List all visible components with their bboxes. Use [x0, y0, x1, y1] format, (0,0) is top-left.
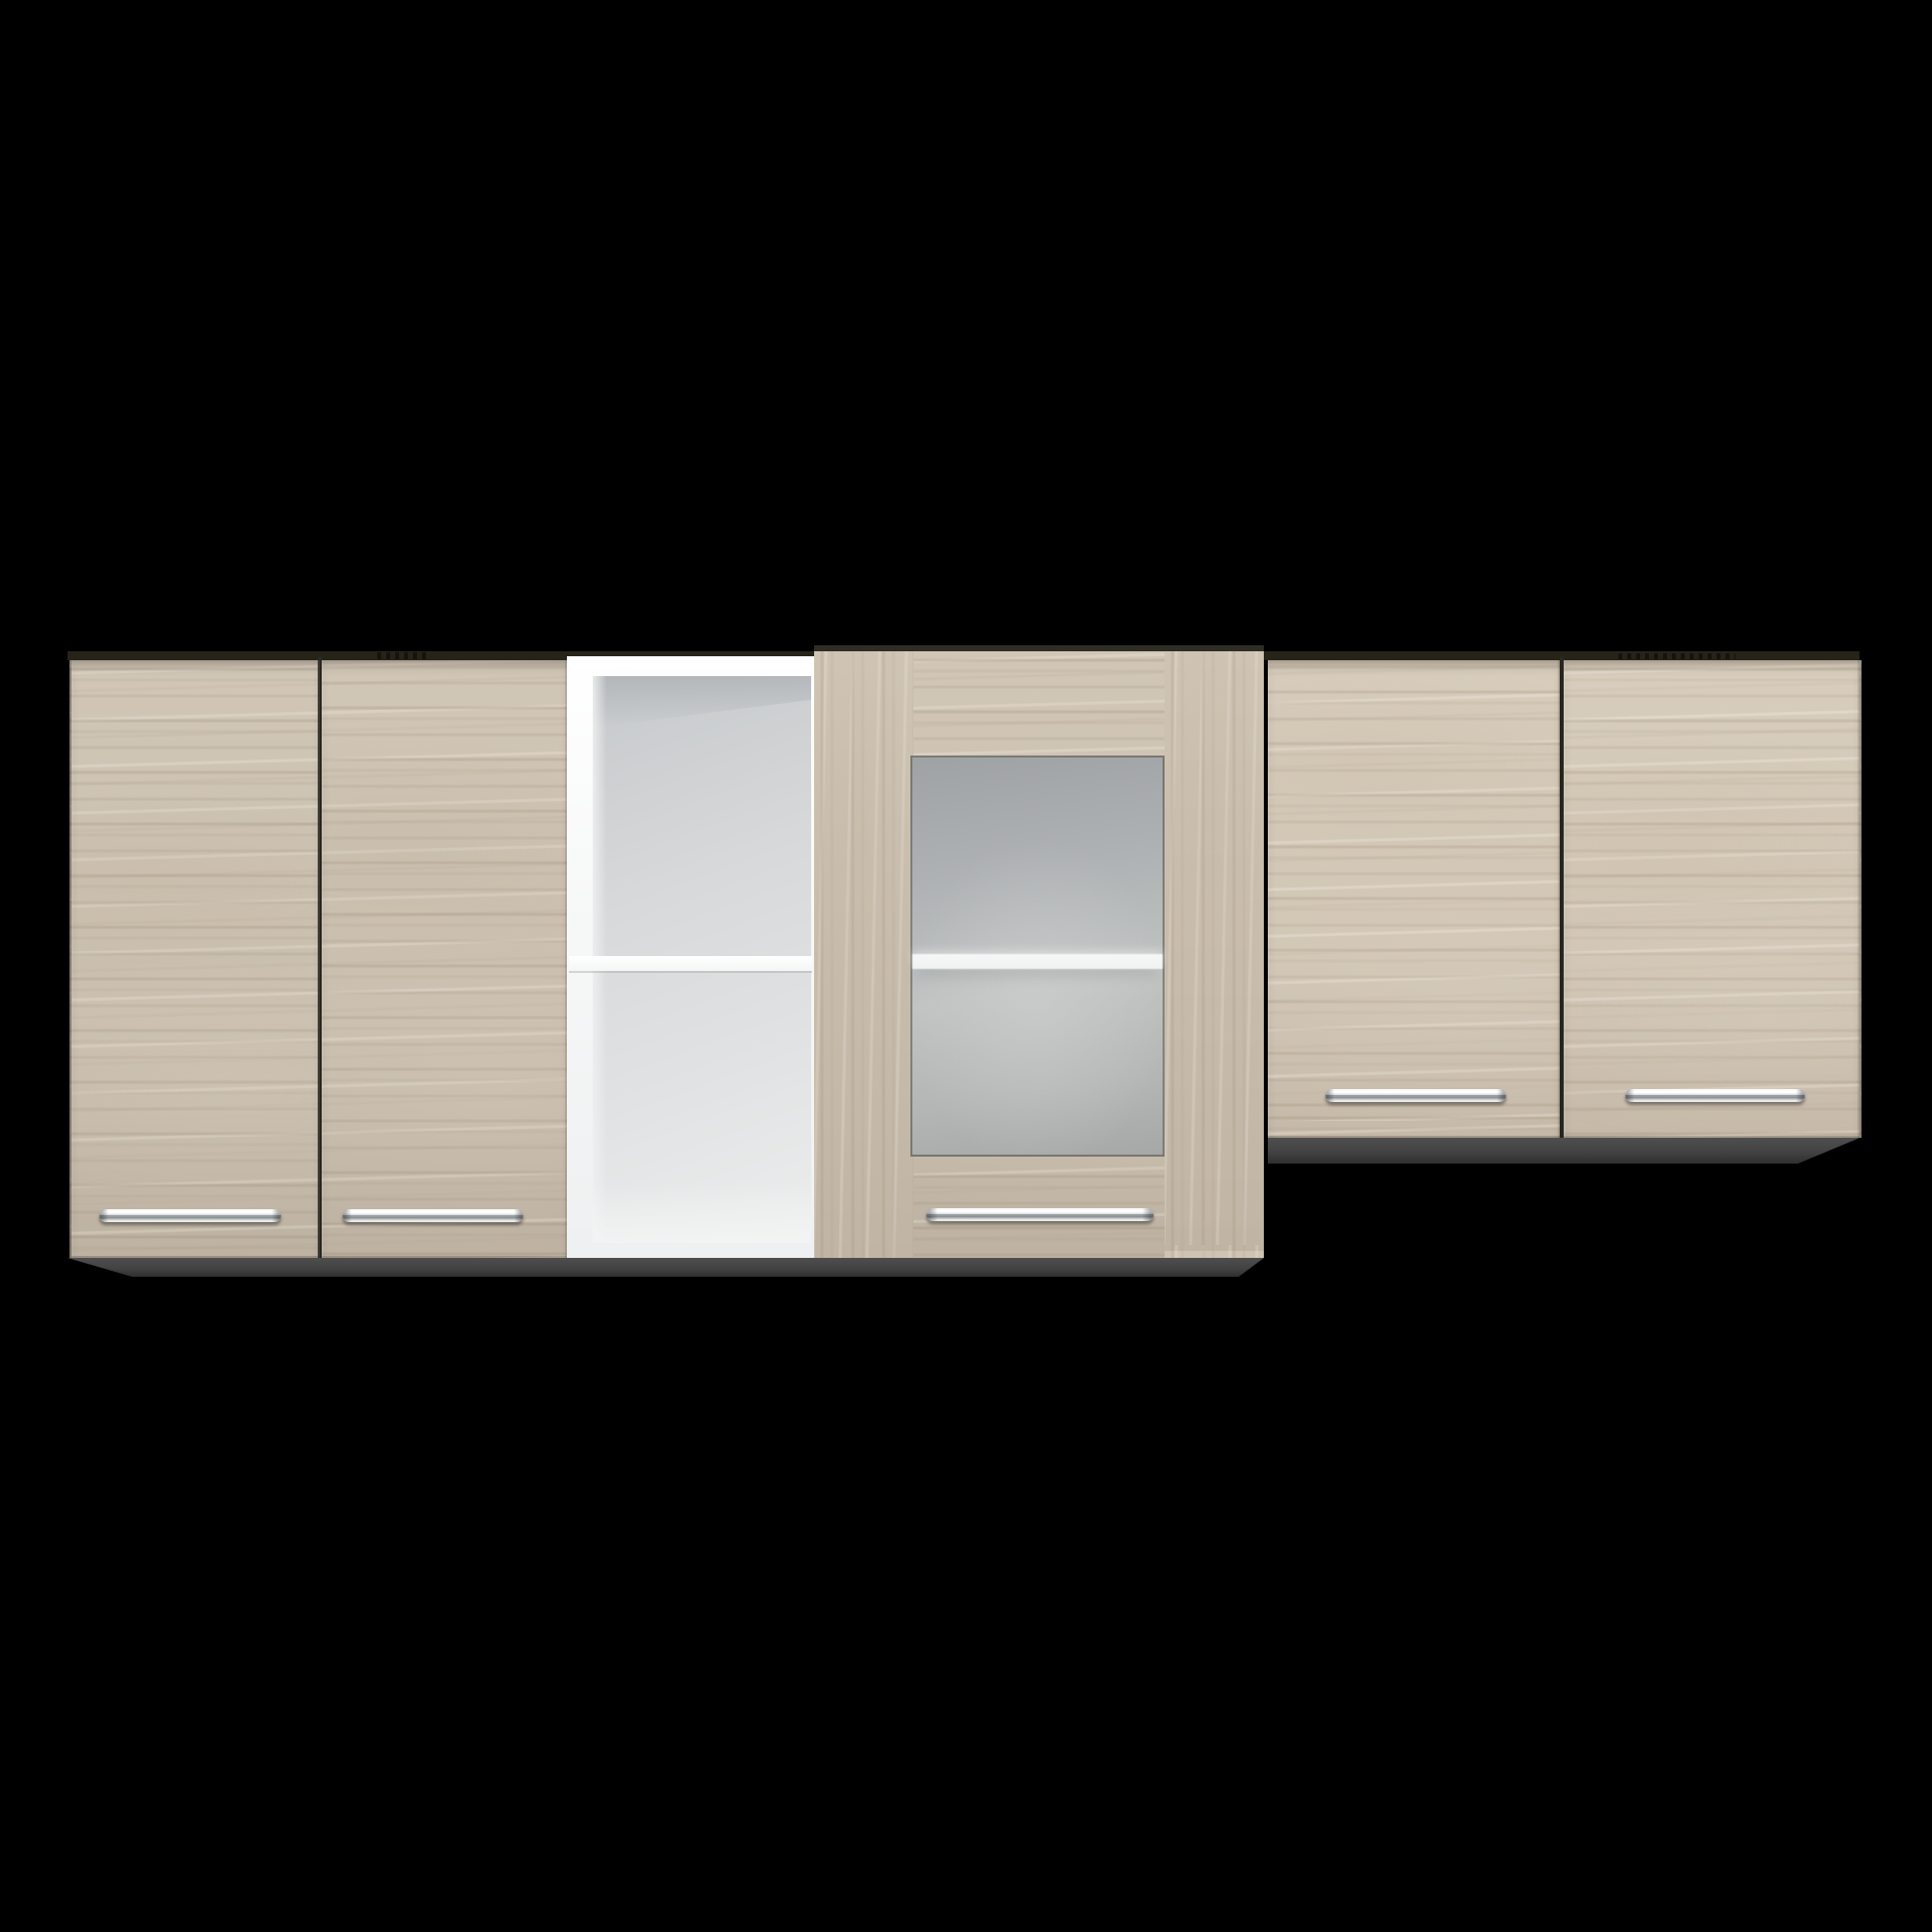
middle-shelf: [569, 956, 812, 971]
cabinet-underside-left: [68, 1258, 1264, 1277]
hinge-marks-right: [1618, 653, 1735, 659]
door-right-2-handle: [1625, 1089, 1805, 1102]
glass-door-cabinet: [814, 651, 1264, 1258]
shelf-behind-glass: [912, 954, 1163, 969]
glass-door-right-stile: [1165, 651, 1264, 1258]
shelf-interior-floor-highlight: [593, 1183, 811, 1243]
cabinet-door-right-2: [1564, 660, 1862, 1138]
shelf-interior-ceiling-shade: [593, 676, 811, 728]
glass-door-left-stile: [814, 651, 913, 1258]
open-shelf-module: [567, 656, 814, 1259]
door-left-2-handle: [343, 1209, 523, 1222]
cabinet-door-left-1: [69, 660, 320, 1258]
door-left-1-handle: [99, 1209, 281, 1222]
product-photo-wall-cabinet-set: [0, 0, 1932, 1932]
cabinet-door-left-2: [322, 660, 567, 1258]
cabinet-door-right-1: [1268, 660, 1560, 1138]
frosted-glass-panel: [910, 756, 1165, 1157]
hinge-marks-left: [377, 652, 427, 659]
glass-door-handle: [926, 1208, 1154, 1221]
door-right-1-handle: [1325, 1089, 1506, 1102]
cabinet-underside-right: [1268, 1138, 1863, 1164]
